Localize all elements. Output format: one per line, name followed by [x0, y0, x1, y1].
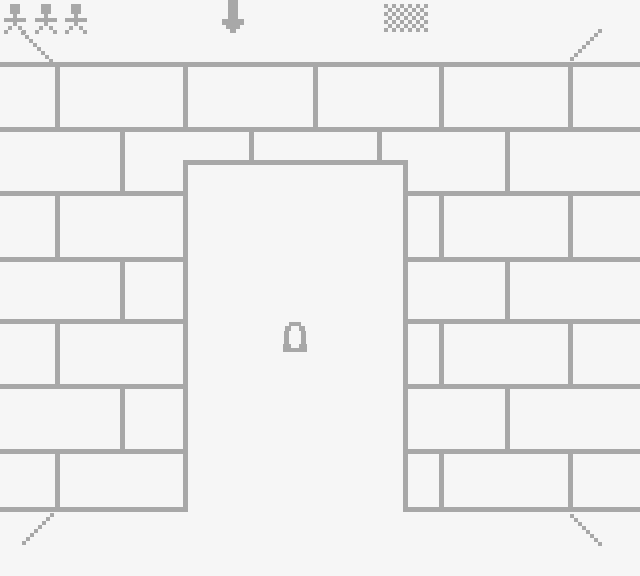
mortar-line-v	[55, 454, 60, 507]
mortar-line-v	[55, 324, 60, 384]
mortar-line-v	[439, 196, 444, 257]
trail-dot	[586, 41, 590, 45]
mortar-line-v	[439, 324, 444, 384]
mortar-line-v	[55, 67, 60, 127]
trail-dot	[50, 513, 54, 517]
mortar-line-v	[120, 262, 125, 319]
mortar-line-v	[439, 67, 444, 127]
trail-dot	[594, 33, 598, 37]
door-left-edge	[183, 160, 188, 512]
trail-dot	[582, 45, 586, 49]
mortar-line-v	[568, 196, 573, 257]
door-top-edge	[183, 160, 408, 165]
trail-dot	[38, 525, 42, 529]
trail-dot	[34, 529, 38, 533]
mortar-line-v	[505, 132, 510, 191]
trail-dot	[590, 37, 594, 41]
trail-dot	[30, 533, 34, 537]
trail-dot	[22, 541, 26, 545]
mortar-line-v	[568, 324, 573, 384]
mortar-line-h	[0, 62, 640, 67]
mortar-line-v	[120, 132, 125, 191]
mortar-line-v	[183, 67, 188, 127]
trail-dot	[574, 53, 578, 57]
mortar-line-v	[568, 67, 573, 127]
mortar-line-v	[568, 454, 573, 507]
door-right-edge	[403, 160, 408, 512]
trail-dot	[49, 59, 53, 63]
trail-dot	[598, 542, 602, 546]
trail-dot	[578, 49, 582, 53]
trail-dot	[570, 57, 574, 61]
mortar-line-v	[505, 262, 510, 319]
mortar-line-h	[0, 127, 640, 132]
doorway-opening[interactable]	[183, 160, 408, 576]
trail-dot	[26, 537, 30, 541]
mortar-line-v	[505, 389, 510, 449]
trail-dot	[598, 29, 602, 33]
mortar-line-v	[439, 454, 444, 507]
trail-dot	[46, 517, 50, 521]
mortar-line-v	[55, 196, 60, 257]
game-scene	[0, 0, 640, 576]
mortar-line-v	[120, 389, 125, 449]
trail-dot	[42, 521, 46, 525]
mortar-line-v	[313, 67, 318, 127]
